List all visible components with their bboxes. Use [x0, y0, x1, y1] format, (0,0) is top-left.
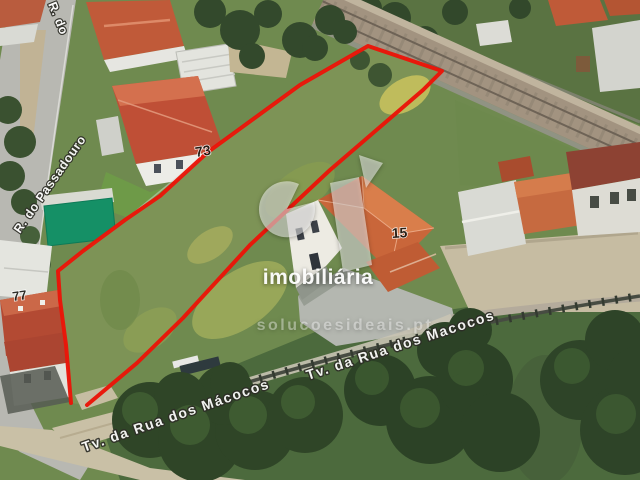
- aerial-map-view: , imobiliária solucoesideais.pt R. do R.…: [0, 0, 640, 480]
- house-number-77: 77: [11, 287, 27, 304]
- aerial-photo: , imobiliária solucoesideais.pt R. do R.…: [0, 0, 640, 480]
- house-number-15: 15: [391, 224, 408, 241]
- house-number-73: 73: [194, 142, 212, 160]
- watermark-brand-text: imobiliária: [263, 266, 374, 289]
- white-shed: [476, 20, 512, 46]
- brown-structure: [576, 56, 590, 72]
- white-building-topright: [592, 20, 640, 92]
- watermark-website-text: solucoesideais.pt: [257, 317, 434, 334]
